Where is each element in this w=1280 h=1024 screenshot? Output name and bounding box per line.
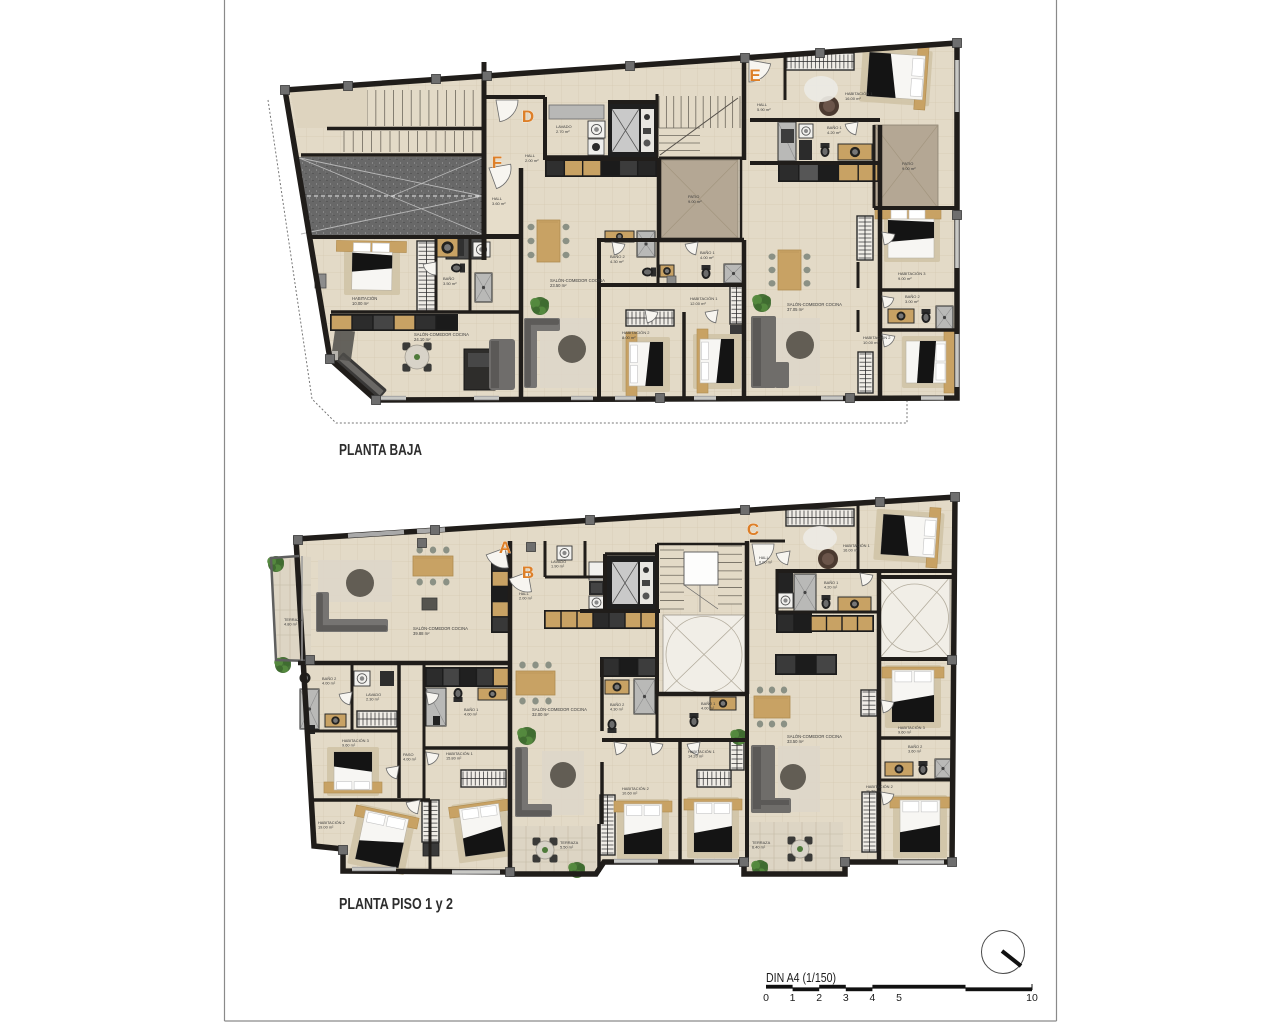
svg-text:B: B [522, 563, 534, 582]
svg-text:D: D [522, 107, 534, 126]
svg-text:BAÑO 24.30 m²: BAÑO 24.30 m² [610, 702, 624, 712]
svg-text:F: F [492, 153, 502, 172]
svg-text:DIN A4 (1/150): DIN A4 (1/150) [766, 971, 836, 985]
svg-text:4: 4 [869, 992, 875, 1004]
svg-text:2: 2 [816, 992, 822, 1004]
svg-text:PLANTA PISO 1 y 2: PLANTA PISO 1 y 2 [339, 896, 453, 913]
svg-text:BAÑO 24.00 m²: BAÑO 24.00 m² [322, 676, 336, 686]
svg-text:A: A [499, 538, 511, 557]
svg-text:5: 5 [896, 992, 902, 1004]
svg-text:C: C [747, 520, 759, 539]
svg-text:3: 3 [843, 992, 849, 1004]
svg-text:BAÑO 14.00 m²: BAÑO 14.00 m² [700, 250, 715, 260]
svg-text:0: 0 [763, 992, 769, 1004]
svg-text:PLANTA BAJA: PLANTA BAJA [339, 442, 422, 459]
svg-text:BAÑO 23.60 m²: BAÑO 23.60 m² [908, 744, 922, 754]
svg-text:BAÑO 14.00 m²: BAÑO 14.00 m² [464, 707, 478, 717]
svg-text:LAVADO2.70 m²: LAVADO2.70 m² [556, 124, 572, 134]
svg-text:LAVADO1.90 m²: LAVADO1.90 m² [551, 559, 566, 569]
svg-text:BAÑO 14.20 m²: BAÑO 14.20 m² [827, 125, 842, 135]
svg-text:BAÑO 23.00 m²: BAÑO 23.00 m² [905, 294, 920, 304]
svg-text:BAÑO 24.30 m²: BAÑO 24.30 m² [610, 254, 625, 264]
svg-text:10: 10 [1026, 992, 1038, 1004]
svg-text:1: 1 [790, 992, 796, 1004]
svg-text:BAÑO 14.20 m²: BAÑO 14.20 m² [824, 580, 838, 590]
svg-text:LAVADO2.30 m²: LAVADO2.30 m² [366, 692, 381, 702]
svg-text:BAÑO 14.00 m²: BAÑO 14.00 m² [701, 701, 715, 711]
svg-text:E: E [749, 66, 760, 85]
